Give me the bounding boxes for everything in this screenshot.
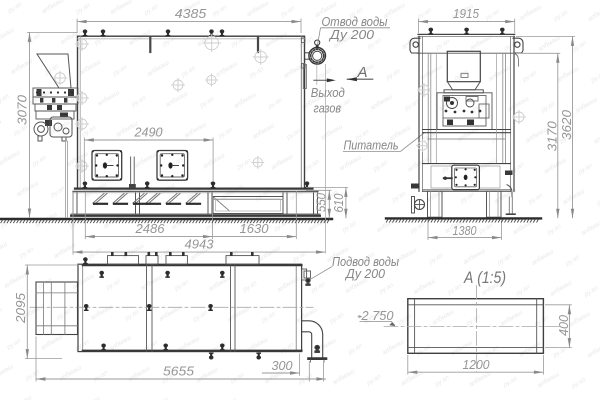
svg-text:Питатель: Питатель	[344, 138, 399, 153]
svg-text:3070: 3070	[14, 94, 29, 125]
svg-text:А: А	[356, 64, 367, 81]
svg-text:5655: 5655	[163, 364, 195, 379]
svg-text:4385: 4385	[175, 6, 207, 21]
svg-text:550: 550	[313, 192, 328, 212]
svg-text:Выход: Выход	[311, 85, 345, 100]
svg-text:2486: 2486	[134, 221, 165, 236]
svg-text:Ду 200: Ду 200	[344, 266, 386, 281]
svg-text:Ду 200: Ду 200	[328, 27, 375, 42]
svg-text:3170: 3170	[544, 121, 559, 152]
svg-text:610: 610	[331, 193, 346, 213]
svg-text:2095: 2095	[13, 292, 28, 324]
svg-text:1630: 1630	[240, 221, 270, 236]
svg-text:400: 400	[556, 314, 571, 336]
svg-text:3620: 3620	[559, 109, 574, 140]
svg-text:2 750: 2 750	[361, 308, 395, 323]
svg-text:2490: 2490	[134, 125, 164, 140]
svg-text:300: 300	[272, 358, 294, 373]
svg-text:газов: газов	[314, 101, 342, 116]
svg-text:1200: 1200	[463, 357, 491, 372]
svg-text:1380: 1380	[453, 223, 478, 238]
svg-text:4943: 4943	[185, 237, 215, 252]
svg-text:А (1:5): А (1:5)	[463, 269, 506, 287]
svg-text:1915: 1915	[453, 6, 480, 21]
